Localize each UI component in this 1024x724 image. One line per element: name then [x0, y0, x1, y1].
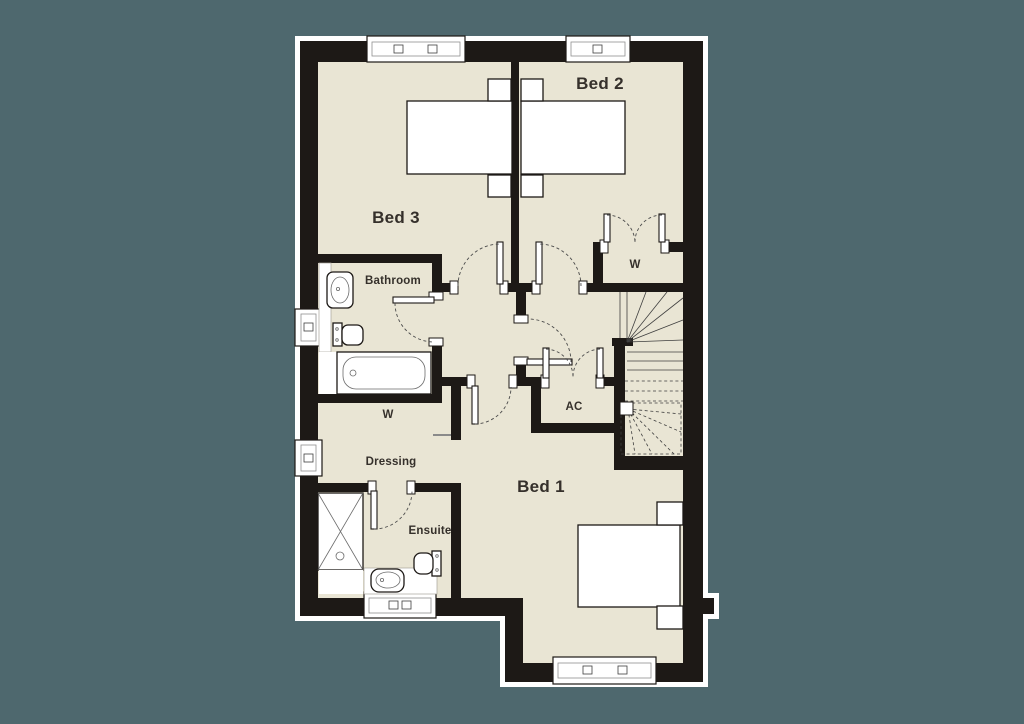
bed2-table-bottom	[521, 175, 543, 197]
bed2-bed	[521, 101, 625, 174]
window-bed1	[553, 657, 656, 684]
window-dressing	[295, 440, 322, 476]
shower	[318, 493, 363, 594]
bathroom-label: Bathroom	[365, 275, 421, 287]
bathroom-toilet	[333, 323, 363, 346]
window-bed3	[367, 36, 465, 62]
bathroom-sink	[327, 272, 353, 308]
bed1-label: Bed 1	[517, 477, 565, 496]
stair-newel-post	[620, 402, 633, 415]
window-bed2	[566, 36, 630, 62]
bed2-table-top	[521, 79, 543, 101]
floor-plan-page: Bed 2 Bed 3 Bed 1 Bathroom W Dressing En…	[0, 0, 1024, 724]
bed1-bed	[578, 525, 680, 607]
window-ensuite	[364, 592, 436, 618]
bed1-table-top	[657, 502, 683, 525]
bed2-label: Bed 2	[576, 74, 624, 93]
window-bathroom	[295, 309, 322, 346]
bed3-table-top	[488, 79, 511, 101]
bathtub	[319, 352, 431, 394]
bed1-table-bottom	[657, 606, 683, 629]
floor-plan: Bed 2 Bed 3 Bed 1 Bathroom W Dressing En…	[0, 0, 1024, 724]
dressing-label: Dressing	[366, 456, 417, 468]
wardrobe-bed2-label: W	[629, 259, 640, 271]
bed3-bed	[407, 101, 512, 174]
ensuite-label: Ensuite	[409, 525, 452, 537]
wardrobe-dressing-label: W	[382, 409, 393, 421]
airing-cupboard-label: AC	[565, 401, 582, 413]
bed3-label: Bed 3	[372, 208, 420, 227]
ensuite-toilet	[414, 551, 441, 576]
bed3-table-bottom	[488, 175, 511, 197]
